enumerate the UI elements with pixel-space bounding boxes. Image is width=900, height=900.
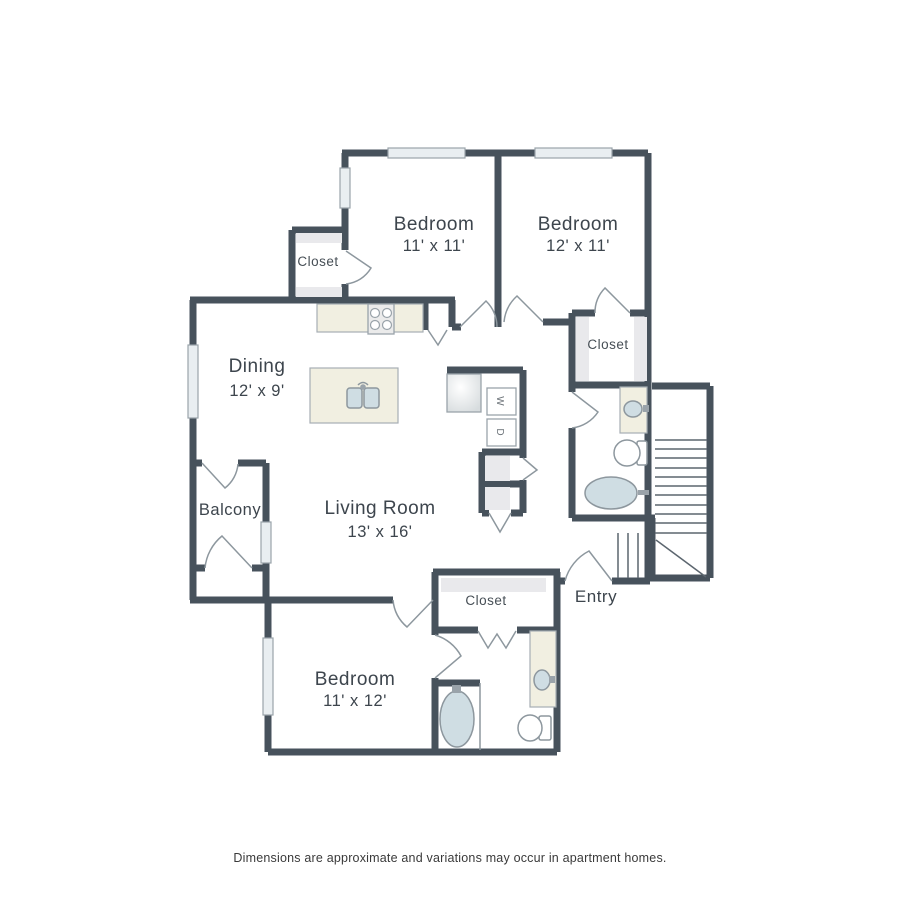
bathroom-upper — [585, 387, 649, 509]
closet-right-label: Closet — [587, 337, 628, 352]
toilet-upper-icon — [614, 440, 640, 466]
bedroom3-dims: 11' x 12' — [323, 692, 387, 710]
bedroom1-label: Bedroom — [394, 214, 475, 235]
bedroom2-label: Bedroom — [538, 214, 619, 235]
door-closet-right — [595, 288, 630, 313]
bathroom-lower — [440, 631, 556, 750]
floor-plan-page: W D — [0, 0, 900, 900]
floor-plan: W D — [0, 0, 900, 900]
stair-diagonal — [656, 540, 706, 577]
shelf-closet-upper-bottom — [296, 287, 342, 297]
closet-upper-label: Closet — [297, 254, 338, 269]
door-closet-lower-bifold — [478, 631, 516, 648]
door-balcony-top — [202, 463, 238, 488]
door-bedroom1 — [460, 301, 497, 327]
shelf-linen-closet-1 — [485, 456, 510, 481]
washer-icon: W — [487, 388, 516, 415]
bathtub-upper-icon — [585, 477, 637, 509]
door-bedroom2 — [504, 296, 543, 322]
shelf-closet-lower — [441, 578, 546, 592]
bedroom3-label: Bedroom — [315, 669, 396, 690]
window-bedroom1-left — [340, 168, 350, 208]
shelf-closet-right-right — [634, 317, 647, 381]
door-bathroom-upper — [572, 392, 598, 428]
window-bedroom2-top — [535, 148, 612, 158]
door-linen-1 — [523, 458, 537, 480]
dining-label: Dining — [229, 356, 286, 377]
closet-lower-label: Closet — [465, 593, 506, 608]
island-faucet-icon — [360, 384, 366, 390]
washer-label: W — [494, 396, 505, 406]
shelf-linen-closet-2 — [485, 487, 510, 510]
dryer-label: D — [494, 428, 505, 435]
bedroom2-dims: 12' x 11' — [546, 237, 610, 255]
door-entry — [565, 551, 612, 581]
dryer-icon: D — [487, 419, 516, 446]
kitchen-island — [310, 368, 398, 423]
sink-upper-icon — [624, 401, 642, 417]
refrigerator-icon — [447, 374, 481, 412]
shelf-closet-upper-top — [296, 233, 342, 243]
entry-steps — [618, 533, 638, 578]
door-closet-upper — [346, 251, 371, 284]
dining-dims: 12' x 9' — [229, 382, 284, 400]
bathtub-lower-icon — [440, 691, 474, 747]
entry-label: Entry — [575, 587, 617, 606]
living-room-label: Living Room — [324, 498, 435, 519]
balcony-label: Balcony — [199, 501, 261, 519]
door-bedroom3 — [393, 600, 433, 627]
door-pantry — [428, 330, 447, 345]
disclaimer-text: Dimensions are approximate and variation… — [233, 851, 666, 865]
window-bedroom3-left — [263, 638, 273, 715]
window-dining-left — [188, 345, 198, 418]
window-balcony-side — [261, 522, 271, 563]
door-balcony-bottom — [205, 536, 252, 568]
window-bedroom1-top — [388, 148, 465, 158]
living-room-dims: 13' x 16' — [348, 523, 413, 541]
sink-lower-icon — [534, 670, 550, 690]
toilet-lower-icon — [518, 715, 542, 741]
door-bathroom-lower — [435, 635, 461, 678]
door-linen-2 — [489, 513, 511, 532]
bedroom1-dims: 11' x 11' — [403, 237, 465, 255]
vanity-lower — [530, 631, 556, 707]
stove-icon — [368, 304, 394, 334]
